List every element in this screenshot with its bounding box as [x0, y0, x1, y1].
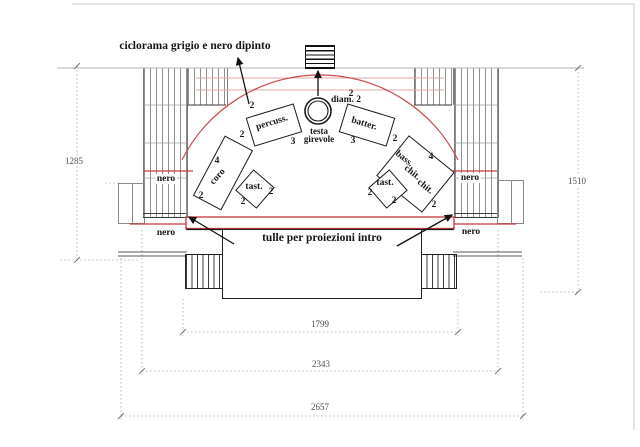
curtain-label-left-low: nero — [155, 228, 177, 238]
dimension-middle-width: 2343 — [310, 359, 332, 369]
stair-hatch-left — [185, 254, 224, 289]
number-tast-right-b: 2 — [392, 196, 397, 206]
dimension-left-height: 1285 — [63, 156, 85, 166]
number-tast-left-a: 2 — [241, 197, 246, 207]
number-guitar-side: 2 — [432, 200, 437, 210]
tulle-band — [186, 217, 454, 229]
number-percuss-top: 2 — [250, 101, 255, 111]
number-tast-right-a: 2 — [368, 188, 373, 198]
cyclorama-note: ciclorama grigio e nero dipinto — [119, 40, 270, 52]
dimension-outer-width: 2657 — [309, 402, 331, 412]
pink-guide-lines — [196, 78, 444, 90]
label-turntable-line2: girevole — [304, 134, 334, 144]
label-keys-left: tast. — [245, 182, 262, 192]
curtain-label-left-mid: nero — [155, 174, 177, 184]
number-guitar-count: 4 — [429, 152, 434, 162]
tulle-label: tulle per proiezioni intro — [223, 232, 421, 244]
label-turntable-diameter: diam. 2 — [331, 95, 361, 105]
curtain-label-right-mid: nero — [459, 173, 481, 183]
number-percuss-front: 3 — [291, 137, 296, 147]
number-coro-count: 4 — [215, 156, 220, 166]
backdrop-panel — [305, 45, 335, 69]
stair-hatch-right — [420, 254, 457, 289]
number-tast-left-b: 2 — [269, 187, 274, 197]
stage-plan-drawing: tulle per proiezioni intro percuss. batt… — [0, 0, 640, 447]
turntable-circle — [305, 98, 331, 124]
number-coro-side: 2 — [199, 191, 204, 201]
number-batter-top: 2 — [349, 89, 354, 99]
number-percuss-side: 2 — [240, 130, 245, 140]
number-batter-side: 2 — [393, 134, 398, 144]
stage-apron-box: tulle per proiezioni intro — [222, 229, 422, 299]
dimension-right-height: 1510 — [566, 176, 588, 186]
dimension-inner-width: 1799 — [309, 319, 331, 329]
number-batter-front: 3 — [351, 136, 356, 146]
curtain-label-right-low: nero — [460, 227, 482, 237]
label-keys-right: tast. — [376, 178, 393, 188]
